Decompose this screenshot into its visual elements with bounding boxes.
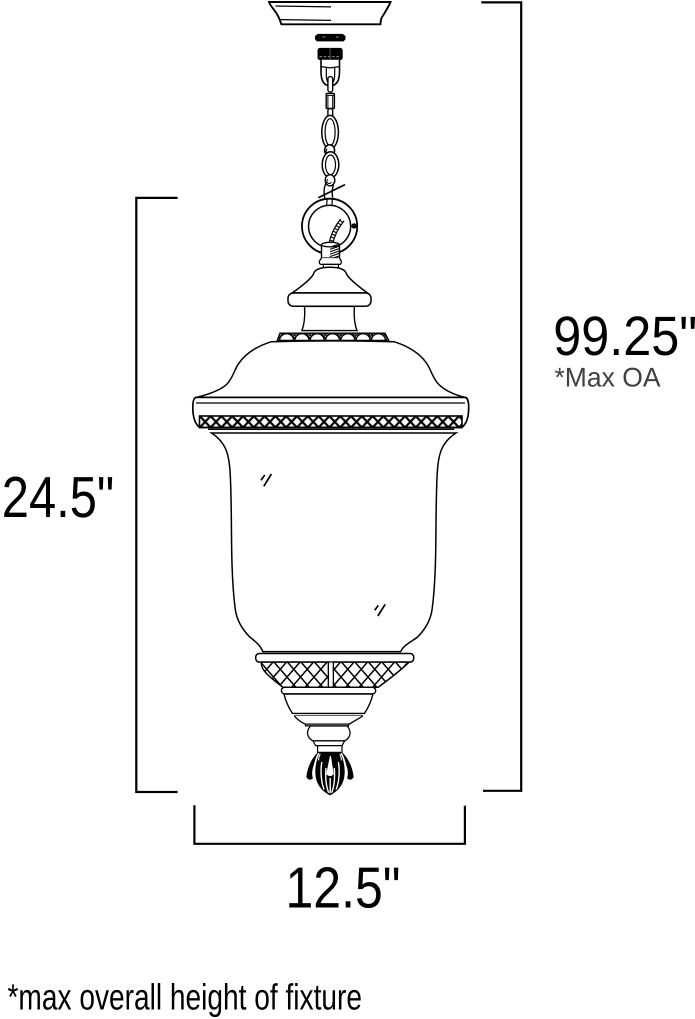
svg-text:99.25": 99.25" [553,305,695,367]
svg-text:12.5": 12.5" [286,856,401,921]
svg-text:*max overall height of fixture: *max overall height of fixture [8,977,363,1018]
svg-text:24.5": 24.5" [2,465,115,530]
svg-text:*Max OA: *Max OA [555,362,661,392]
